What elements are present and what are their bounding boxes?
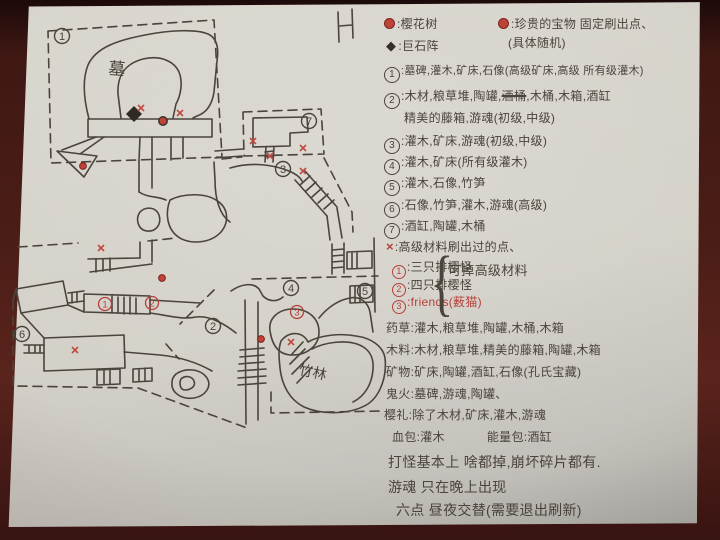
svg-text:2: 2 (210, 321, 216, 333)
struck-item: 酒桶 (502, 89, 527, 103)
legend-treasure: :珍贵的宝物 固定刷出点、 (498, 15, 654, 32)
legend-region-2: 2:木材,粮草堆,陶罐,酒桶,木桶,木箱,酒缸 (384, 87, 611, 109)
legend-x-note: ×:高级材料刷出过的点、 (386, 238, 522, 255)
drop-hp-energy: 血包:灌木能量包:酒缸 (392, 428, 552, 445)
drop-wood: 木料:木材,粮草堆,精美的藤箱,陶罐,木箱 (386, 341, 601, 358)
svg-text:7: 7 (306, 116, 312, 128)
bamboo-area (279, 334, 385, 413)
region-number-markers: 1 2 3 4 5 6 7 (15, 29, 373, 342)
legend-henge: ◆:巨石阵 (386, 37, 439, 54)
tomb-label: 墓 (108, 59, 126, 79)
x-glyph: × (386, 239, 394, 254)
svg-text:5: 5 (362, 286, 368, 298)
sakura-dot-icon (384, 18, 395, 29)
west-ponds (124, 300, 236, 398)
svg-text:6: 6 (19, 329, 25, 341)
drop-ore: 矿物:矿床,陶罐,酒缸,石像(孔氏宝藏) (386, 363, 581, 380)
corridors (88, 149, 302, 272)
treasure-dot-icon (498, 18, 509, 29)
bamboo-label: 竹林 (297, 361, 328, 382)
building-cluster (13, 281, 152, 385)
svg-text:3: 3 (294, 308, 299, 319)
svg-text:2: 2 (149, 299, 154, 310)
legend-region-2b: 精美的藤箱,游魂(初级,中级) (404, 109, 555, 126)
svg-text:1: 1 (59, 31, 65, 43)
stairs-ne (295, 171, 344, 274)
svg-text:1: 1 (102, 300, 107, 311)
legend-region-7: 7:酒缸,陶罐,木桶 (384, 217, 486, 239)
legend-treasure-sub: (具体随机) (508, 34, 566, 51)
note-3: 六点 昼夜交替(需要退出刷新) (396, 500, 582, 520)
legend-region-5: 5:灌木,石像,竹笋 (384, 174, 486, 196)
drop-herb: 药草:灌木,粮草堆,陶罐,木桶,木箱 (386, 319, 564, 336)
drop-ghostfire: 鬼火:墓碑,游魂,陶罐、 (386, 385, 508, 402)
legend-sakura: :樱花树 (384, 15, 438, 32)
stone-henge-glyph: ◆ (386, 38, 396, 53)
pond-area (231, 285, 373, 424)
legend-region-6: 6:石像,竹笋,灌木,游魂(高级) (384, 196, 547, 218)
spawn-brace: { (430, 246, 453, 320)
note-1: 打怪基本上 啥都掉,崩坏碎片都有. (388, 452, 601, 472)
legend-region-3: 3:灌木,矿床,游魂(初级,中级) (384, 132, 547, 154)
tomb-area (57, 31, 218, 177)
legend-region-4: 4:灌木,矿床(所有级灌木) (384, 153, 528, 175)
drop-sakura: 樱礼:除了木材,矿床,灌木,游魂 (384, 406, 546, 423)
svg-text:4: 4 (288, 283, 294, 295)
spawn-brace-note: 可掉高级材料 (448, 260, 528, 279)
top-structure (338, 9, 353, 42)
east-structures (347, 238, 375, 312)
note-2: 游魂 只在晚上出现 (388, 477, 507, 497)
legend-region-1: 1:墓碑,灌木,矿床,石像(高级矿床,高级 所有级灌木) (384, 62, 644, 83)
svg-text:3: 3 (280, 164, 286, 176)
